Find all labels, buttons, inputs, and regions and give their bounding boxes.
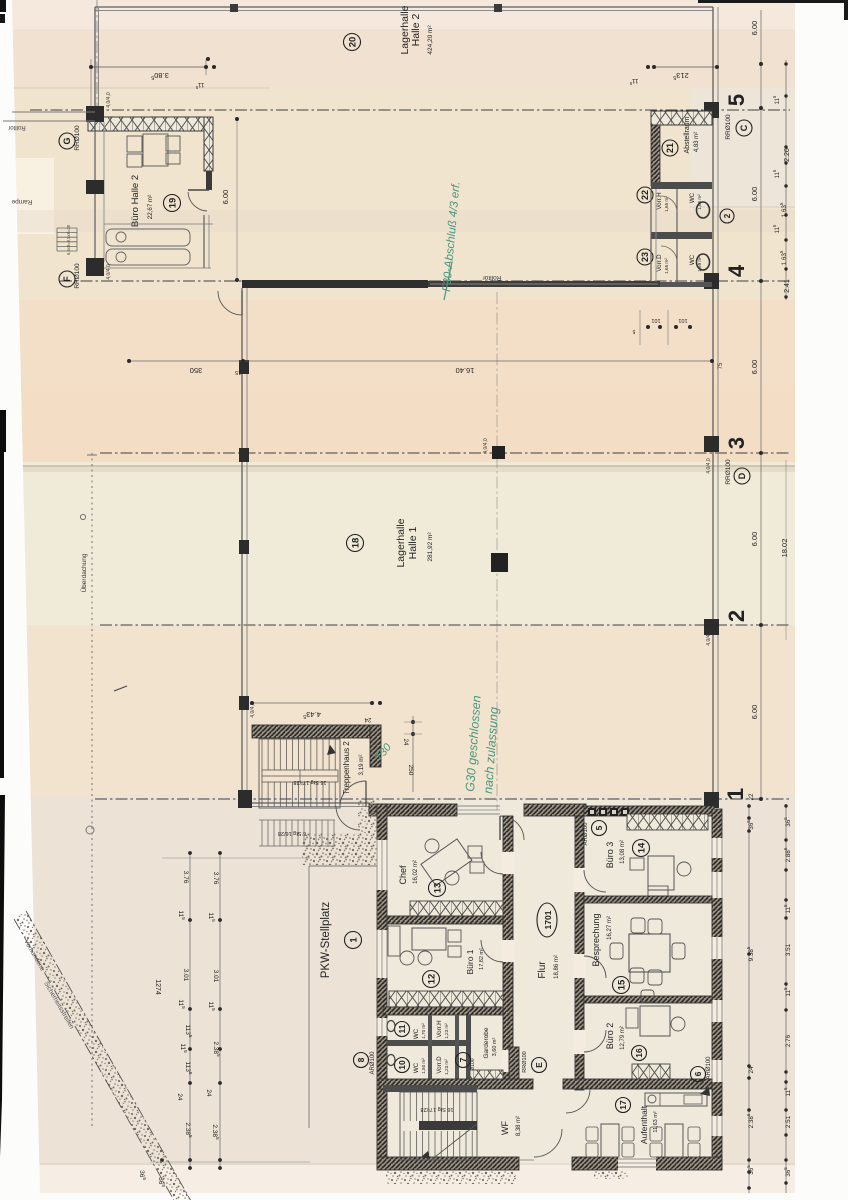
svg-text:12,79 m²: 12,79 m² [620, 1026, 626, 1050]
svg-text:101: 101 [678, 317, 687, 323]
svg-text:3.76: 3.76 [182, 871, 189, 884]
svg-text:PKW-Stellplatz: PKW-Stellplatz [320, 902, 332, 979]
svg-text:2.51: 2.51 [785, 1115, 792, 1128]
svg-text:Besprechung: Besprechung [591, 913, 601, 966]
svg-text:Chef: Chef [398, 865, 408, 885]
svg-text:3: 3 [724, 437, 749, 449]
svg-text:6: 6 [693, 1071, 703, 1076]
svg-text:6.00: 6.00 [221, 190, 230, 205]
svg-text:17,82 m²: 17,82 m² [479, 948, 485, 970]
svg-text:13: 13 [432, 883, 443, 894]
svg-text:4: 4 [724, 264, 749, 277]
svg-text:1,65 m²: 1,65 m² [664, 196, 669, 212]
svg-text:16.40: 16.40 [456, 366, 475, 375]
svg-text:24: 24 [176, 1093, 183, 1101]
svg-text:250: 250 [407, 765, 414, 776]
svg-text:6 Stg 16/28: 6 Stg 16/28 [278, 830, 306, 836]
svg-text:3,60 m²: 3,60 m² [492, 1038, 498, 1057]
svg-text:Aufenthalt: Aufenthalt [639, 1105, 649, 1144]
svg-text:4,0/4,0: 4,0/4,0 [706, 458, 712, 474]
svg-text:RRØ100: RRØ100 [74, 125, 81, 151]
svg-text:101: 101 [651, 317, 660, 323]
svg-text:12: 12 [426, 974, 437, 985]
svg-text:1274: 1274 [154, 979, 161, 995]
svg-text:5: 5 [594, 825, 604, 830]
svg-text:18,86 m²: 18,86 m² [554, 955, 560, 979]
svg-text:ARØ100: ARØ100 [583, 822, 589, 846]
svg-text:WC: WC [689, 192, 696, 203]
svg-text:Lagerhalle: Lagerhalle [395, 518, 407, 567]
svg-text:4,0/4,0: 4,0/4,0 [106, 92, 112, 108]
svg-text:15: 15 [616, 979, 627, 990]
svg-text:2.41: 2.41 [784, 279, 791, 293]
svg-text:Vorr.D: Vorr.D [656, 254, 663, 272]
svg-text:6,5x9=9,5x9=28: 6,5x9=9,5x9=28 [66, 224, 71, 255]
svg-text:1,50 m²: 1,50 m² [421, 1058, 426, 1074]
svg-text:16,27 m²: 16,27 m² [607, 916, 613, 940]
svg-text:23: 23 [640, 252, 650, 262]
svg-text:Büro 1: Büro 1 [465, 949, 475, 974]
svg-text:3.51: 3.51 [785, 943, 792, 956]
svg-text:2: 2 [724, 610, 749, 622]
svg-text:8: 8 [356, 1057, 366, 1062]
svg-text:Vorr.D: Vorr.D [436, 1056, 443, 1074]
svg-text:6.00: 6.00 [750, 21, 759, 36]
svg-text:RRØ100: RRØ100 [725, 459, 732, 485]
svg-text:14: 14 [636, 842, 647, 853]
svg-text:Vorr.H: Vorr.H [436, 1020, 443, 1037]
svg-text:6.00: 6.00 [750, 187, 759, 202]
svg-text:16 Stg 17²/28: 16 Stg 17²/28 [420, 1106, 453, 1112]
svg-text:D: D [737, 472, 747, 479]
svg-text:6.00: 6.00 [750, 705, 759, 720]
svg-text:5: 5 [632, 328, 635, 334]
svg-text:281,92 m²: 281,92 m² [427, 532, 434, 562]
svg-text:1,23 m²: 1,23 m² [444, 1059, 449, 1075]
svg-text:2: 2 [723, 213, 732, 218]
svg-text:7: 7 [458, 1057, 468, 1062]
svg-text:ARØ100: ARØ100 [370, 1051, 376, 1075]
svg-text:75: 75 [718, 362, 724, 369]
svg-text:16: 16 [634, 1048, 644, 1058]
svg-text:Büro Halle 2: Büro Halle 2 [130, 175, 141, 227]
svg-text:F: F [62, 276, 72, 282]
svg-text:4,0/4,0: 4,0/4,0 [706, 630, 712, 646]
svg-text:WC: WC [413, 1062, 420, 1073]
svg-text:20: 20 [347, 37, 358, 48]
svg-text:E: E [534, 1062, 544, 1068]
svg-text:1,65 m²: 1,65 m² [664, 258, 669, 274]
svg-text:3.01: 3.01 [212, 970, 219, 983]
svg-text:6.00: 6.00 [750, 360, 759, 375]
svg-text:Überdachung: Überdachung [80, 553, 88, 592]
svg-text:24: 24 [402, 739, 408, 746]
svg-text:1701: 1701 [543, 910, 553, 929]
svg-text:Halle 1: Halle 1 [407, 526, 419, 559]
svg-text:18: 18 [350, 538, 361, 549]
svg-text:24: 24 [364, 716, 371, 722]
svg-text:C: C [739, 124, 749, 131]
svg-text:Abstellraum: Abstellraum [684, 116, 691, 153]
svg-text:WC: WC [689, 254, 696, 265]
svg-text:Rolltor: Rolltor [8, 124, 25, 130]
svg-text:Vorr.H: Vorr.H [656, 192, 663, 209]
svg-text:18.02: 18.02 [780, 539, 789, 558]
svg-text:24: 24 [205, 1089, 212, 1097]
svg-text:16 Stg 17²/28: 16 Stg 17²/28 [293, 779, 326, 785]
svg-text:22: 22 [748, 793, 755, 801]
svg-text:424,20 m²: 424,20 m² [427, 25, 434, 55]
svg-text:17: 17 [618, 1100, 628, 1110]
svg-text:22,67 m²: 22,67 m² [147, 195, 154, 219]
svg-text:Rampe: Rampe [11, 198, 32, 205]
svg-text:21: 21 [665, 143, 675, 153]
svg-text:1,70 m²: 1,70 m² [421, 1023, 426, 1039]
svg-text:350: 350 [190, 366, 203, 375]
svg-text:4,83 m²: 4,83 m² [694, 132, 700, 152]
svg-text:RRØ100: RRØ100 [725, 114, 732, 140]
svg-text:4,0/4,0: 4,0/4,0 [106, 264, 112, 280]
svg-text:WC: WC [413, 1028, 420, 1039]
svg-text:Garderobe: Garderobe [483, 1027, 490, 1058]
svg-text:G: G [62, 137, 72, 144]
svg-text:1: 1 [723, 788, 748, 800]
svg-text:1: 1 [348, 937, 359, 943]
svg-text:Flur: Flur [537, 961, 548, 979]
svg-text:16,02 m²: 16,02 m² [413, 860, 419, 884]
svg-text:11,63 m²: 11,63 m² [653, 1111, 659, 1132]
svg-text:19: 19 [167, 198, 178, 209]
svg-text:6.00: 6.00 [750, 532, 759, 547]
svg-text:3,19 m²: 3,19 m² [358, 755, 365, 776]
svg-text:Büro 3: Büro 3 [605, 842, 615, 869]
svg-text:22: 22 [640, 190, 650, 200]
svg-text:13,08 m²: 13,08 m² [620, 840, 626, 864]
svg-text:8,38 m²: 8,38 m² [516, 1116, 522, 1136]
svg-text:Rolltor: Rolltor [482, 274, 502, 281]
svg-text:RRØ100: RRØ100 [74, 263, 81, 289]
svg-text:3.01: 3.01 [182, 969, 189, 982]
svg-text:WF: WF [500, 1121, 510, 1135]
svg-text:2.26: 2.26 [784, 148, 791, 162]
svg-text:Büro 2: Büro 2 [605, 1023, 615, 1050]
svg-text:ARØ100: ARØ100 [706, 1056, 712, 1080]
svg-text:3.76: 3.76 [212, 872, 219, 885]
svg-text:24: 24 [748, 1066, 755, 1074]
svg-text:RRØ100: RRØ100 [522, 1051, 528, 1072]
svg-text:11: 11 [397, 1024, 407, 1033]
svg-text:10: 10 [397, 1060, 407, 1070]
svg-text:15: 15 [235, 369, 241, 375]
svg-text:4,0/4,0: 4,0/4,0 [483, 438, 489, 454]
svg-text:Halle 2: Halle 2 [410, 13, 422, 46]
svg-text:2.76: 2.76 [785, 1034, 792, 1047]
svg-text:5: 5 [724, 94, 749, 106]
svg-text:1,23 m²: 1,23 m² [444, 1023, 449, 1039]
